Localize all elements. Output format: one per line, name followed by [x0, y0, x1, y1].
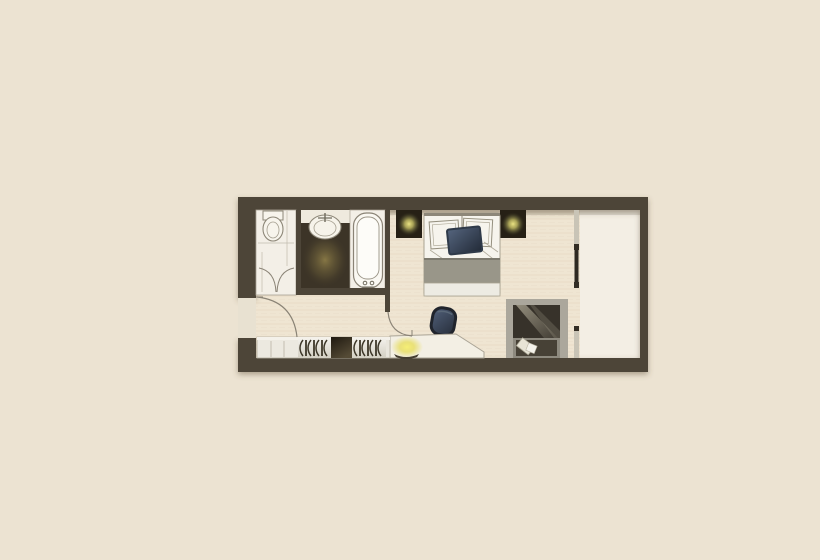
- bed-foot-band: [424, 283, 500, 296]
- bathtub-icon: [354, 213, 383, 288]
- bottom-wall: [238, 358, 648, 372]
- window-frame-cap-2: [574, 282, 579, 288]
- window-frame-segment-dark: [575, 250, 579, 282]
- left-wall-lower: [238, 338, 256, 372]
- wardrobe-dark-section: [331, 337, 352, 358]
- wardrobe: [257, 337, 390, 358]
- window-seat: [506, 299, 568, 358]
- bed-blanket-edge: [424, 258, 500, 260]
- bathtub-right-wall: [385, 210, 390, 312]
- office-chair-icon: [430, 306, 457, 337]
- bed-throw-icon: [447, 226, 482, 254]
- bathroom-bottom-wall: [296, 288, 390, 295]
- bedside-lamp-right-icon: [501, 212, 525, 236]
- toilet-icon: [263, 211, 283, 241]
- wardrobe-hanger-section-left: [298, 339, 331, 357]
- bedside-lamp-left-icon: [397, 212, 421, 236]
- vanity-glow: [301, 232, 349, 288]
- top-wall: [238, 197, 648, 210]
- bed-blanket: [424, 258, 500, 283]
- balcony-floor: [580, 210, 640, 358]
- window-frame-cap-3: [574, 326, 579, 331]
- floor-plan-image: [0, 0, 820, 560]
- bathroom-divider-wall: [296, 210, 301, 295]
- right-wall: [640, 197, 648, 372]
- window-wall: [574, 210, 579, 358]
- double-bed: [424, 213, 500, 296]
- wardrobe-shelf-section: [258, 340, 298, 357]
- floor-plan-svg: [0, 0, 820, 560]
- window-frame-cap-1: [574, 244, 579, 250]
- wardrobe-hanger-section-right: [352, 339, 386, 357]
- left-wall-upper: [238, 197, 256, 298]
- entry-opening: [238, 298, 256, 338]
